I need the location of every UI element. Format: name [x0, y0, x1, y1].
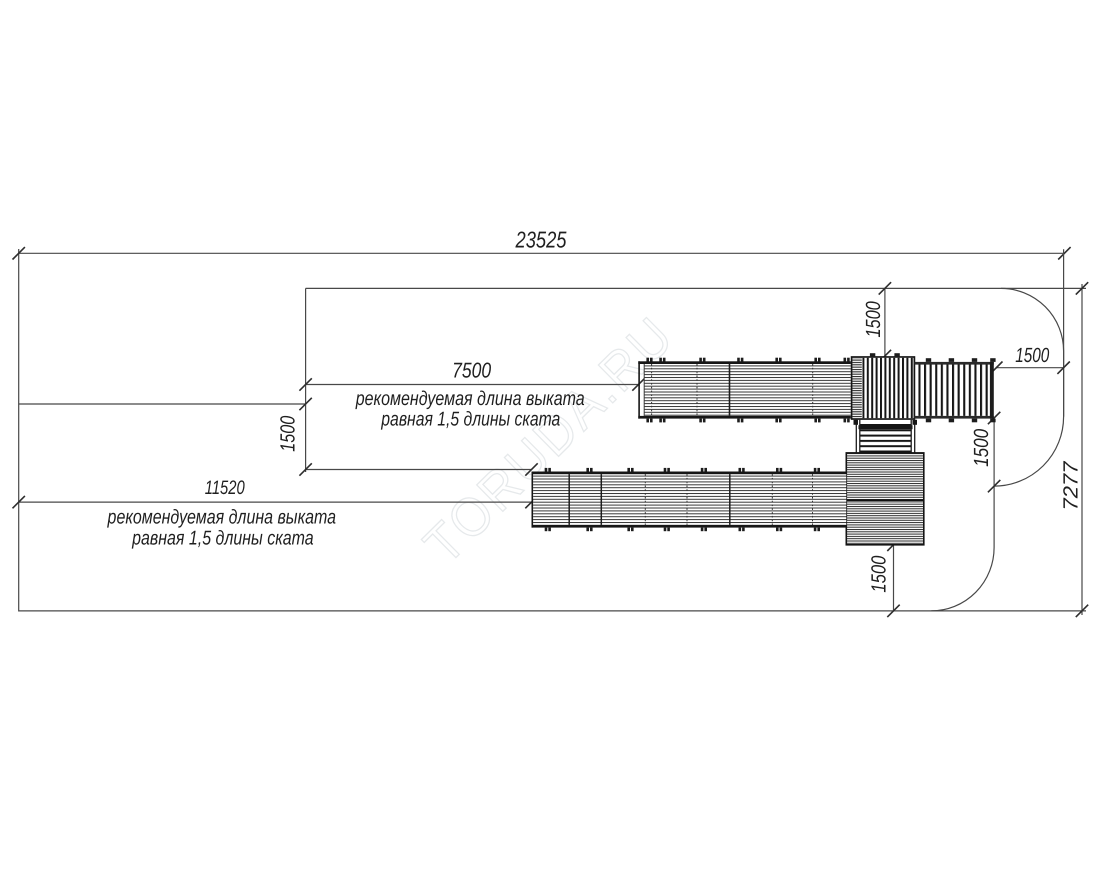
svg-text:1500: 1500 [1015, 344, 1049, 367]
svg-text:1500: 1500 [277, 415, 300, 451]
svg-text:1500: 1500 [868, 555, 891, 592]
svg-text:1500: 1500 [970, 428, 993, 466]
svg-text:1500: 1500 [862, 301, 885, 338]
svg-text:11520: 11520 [205, 477, 245, 499]
svg-text:23525: 23525 [515, 227, 567, 253]
svg-text:рекомендуемая длина выката: рекомендуемая длина выката [355, 388, 585, 410]
svg-text:7277: 7277 [1060, 460, 1083, 511]
svg-text:равная 1,5 длины ската: равная 1,5 длины ската [131, 527, 313, 549]
svg-text:7500: 7500 [452, 358, 491, 382]
svg-text:рекомендуемая длина выката: рекомендуемая длина выката [107, 506, 336, 528]
svg-text:равная 1,5 длины ската: равная 1,5 длины ската [381, 409, 561, 431]
